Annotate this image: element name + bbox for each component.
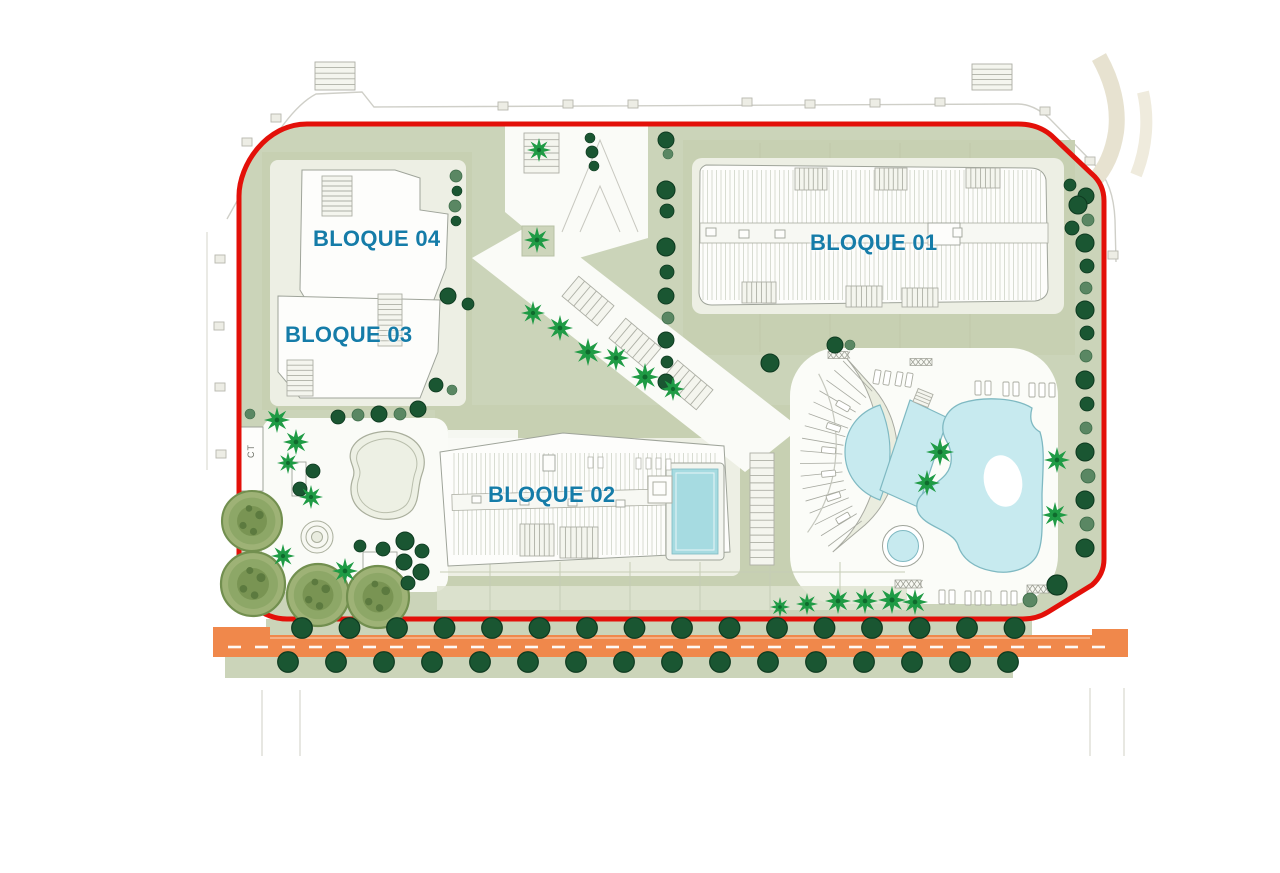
round-pool (888, 531, 919, 562)
curved-road-band (1094, 57, 1117, 181)
label-bloque-04: BLOQUE 04 (313, 226, 440, 252)
label-bloque-02: BLOQUE 02 (488, 482, 615, 508)
kids-pond (350, 432, 424, 520)
rooftop-pool (672, 469, 718, 554)
site-plan: BLOQUE 01 BLOQUE 02 BLOQUE 03 BLOQUE 04 … (0, 0, 1280, 873)
label-ct: CT (246, 438, 256, 464)
fountain (301, 521, 333, 553)
site-plan-drawing (0, 0, 1280, 873)
label-bloque-03: BLOQUE 03 (285, 322, 412, 348)
label-bloque-01: BLOQUE 01 (810, 230, 937, 256)
curved-road-band-2 (1136, 92, 1146, 175)
